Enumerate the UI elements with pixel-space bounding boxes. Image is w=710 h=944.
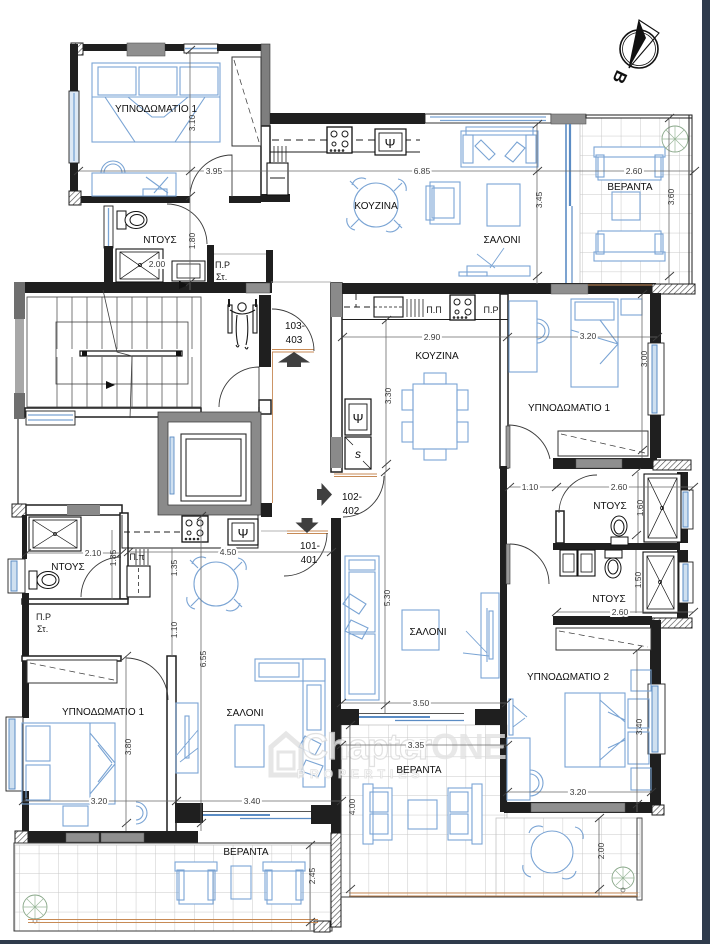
svg-text:Ψ: Ψ <box>353 411 364 426</box>
svg-text:401: 401 <box>301 555 318 566</box>
svg-text:2.60: 2.60 <box>611 482 628 492</box>
svg-text:3.30: 3.30 <box>383 387 393 404</box>
svg-text:ΣΑΛΟΝΙ: ΣΑΛΟΝΙ <box>483 235 520 246</box>
svg-text:4.00: 4.00 <box>347 798 357 815</box>
svg-text:3.10: 3.10 <box>187 114 197 131</box>
svg-text:1.85: 1.85 <box>108 549 118 566</box>
svg-text:3.50: 3.50 <box>413 698 430 708</box>
svg-text:3.80: 3.80 <box>123 738 133 755</box>
svg-text:3.40: 3.40 <box>244 796 261 806</box>
svg-text:2.60: 2.60 <box>612 607 629 617</box>
svg-text:Ψ: Ψ <box>385 136 396 151</box>
svg-text:Π.Ρ: Π.Ρ <box>36 612 51 622</box>
svg-text:3.00: 3.00 <box>639 350 649 367</box>
svg-text:ΥΠΝΟΔΩΜΑΤΙΟ 1: ΥΠΝΟΔΩΜΑΤΙΟ 1 <box>62 707 145 718</box>
svg-text:6.55: 6.55 <box>198 650 208 667</box>
svg-text:ΒΕΡΑΝΤΑ: ΒΕΡΑΝΤΑ <box>607 182 653 193</box>
svg-text:ΥΠΝΟΔΩΜΑΤΙΟ 1: ΥΠΝΟΔΩΜΑΤΙΟ 1 <box>528 403 611 414</box>
svg-text:Π.Π: Π.Π <box>426 305 442 315</box>
svg-text:ΣΑΛΟΝΙ: ΣΑΛΟΝΙ <box>226 708 263 719</box>
svg-text:2.00: 2.00 <box>596 842 606 859</box>
svg-text:403: 403 <box>286 335 303 346</box>
svg-text:ChapterONE: ChapterONE <box>302 726 506 767</box>
svg-text:2.45: 2.45 <box>307 867 317 884</box>
svg-text:3.20: 3.20 <box>91 796 108 806</box>
svg-text:101-: 101- <box>300 541 320 552</box>
svg-text:3.20: 3.20 <box>570 787 587 797</box>
svg-text:ΥΠΝΟΔΩΜΑΤΙΟ 1: ΥΠΝΟΔΩΜΑΤΙΟ 1 <box>115 104 198 115</box>
svg-text:2.90: 2.90 <box>424 332 441 342</box>
svg-text:1.60: 1.60 <box>635 499 645 516</box>
svg-text:1.10: 1.10 <box>522 482 539 492</box>
svg-text:103-: 103- <box>285 321 305 332</box>
svg-text:ΝΤΟΥΣ: ΝΤΟΥΣ <box>51 562 84 573</box>
svg-text:ΝΤΟΥΣ: ΝΤΟΥΣ <box>592 594 625 605</box>
svg-text:6.85: 6.85 <box>414 166 431 176</box>
svg-text:ΝΤΟΥΣ: ΝΤΟΥΣ <box>143 235 176 246</box>
svg-text:ΒΕΡΑΝΤΑ: ΒΕΡΑΝΤΑ <box>223 847 269 858</box>
svg-text:Π.π: Π.π <box>129 552 144 562</box>
svg-text:1.80: 1.80 <box>187 232 197 249</box>
svg-text:402: 402 <box>343 506 360 517</box>
svg-text:2.00: 2.00 <box>149 259 166 269</box>
svg-text:3.35: 3.35 <box>408 740 425 750</box>
svg-text:4.50: 4.50 <box>220 547 237 557</box>
svg-text:ΝΤΟΥΣ: ΝΤΟΥΣ <box>593 501 626 512</box>
svg-text:ΣΑΛΟΝΙ: ΣΑΛΟΝΙ <box>409 627 446 638</box>
svg-text:3.60: 3.60 <box>666 188 676 205</box>
svg-text:3.20: 3.20 <box>580 331 597 341</box>
svg-text:ΥΠΝΟΔΩΜΑΤΙΟ 2: ΥΠΝΟΔΩΜΑΤΙΟ 2 <box>527 672 610 683</box>
svg-text:3.40: 3.40 <box>634 718 644 735</box>
svg-text:1.35: 1.35 <box>169 559 179 576</box>
svg-text:3.45: 3.45 <box>534 191 544 208</box>
svg-text:Π.Ρ: Π.Ρ <box>483 305 498 315</box>
svg-text:Π.Ρ: Π.Ρ <box>215 260 230 270</box>
svg-text:2.60: 2.60 <box>626 166 643 176</box>
svg-text:1.50: 1.50 <box>633 571 643 588</box>
svg-text:2.10: 2.10 <box>85 548 102 558</box>
svg-text:5.30: 5.30 <box>382 589 392 606</box>
svg-text:Στ.: Στ. <box>216 272 227 282</box>
svg-text:1.10: 1.10 <box>169 621 179 638</box>
svg-text:ΒΕΡΑΝΤΑ: ΒΕΡΑΝΤΑ <box>396 765 442 776</box>
svg-text:3.95: 3.95 <box>206 166 223 176</box>
svg-text:Ψ: Ψ <box>238 526 249 541</box>
svg-text:ΚΟΥΖΙΝΑ: ΚΟΥΖΙΝΑ <box>354 201 398 212</box>
svg-text:102-: 102- <box>342 492 362 503</box>
svg-text:s: s <box>355 447 361 461</box>
svg-text:Στ.: Στ. <box>37 624 48 634</box>
svg-text:ΚΟΥΖΙΝΑ: ΚΟΥΖΙΝΑ <box>415 351 459 362</box>
